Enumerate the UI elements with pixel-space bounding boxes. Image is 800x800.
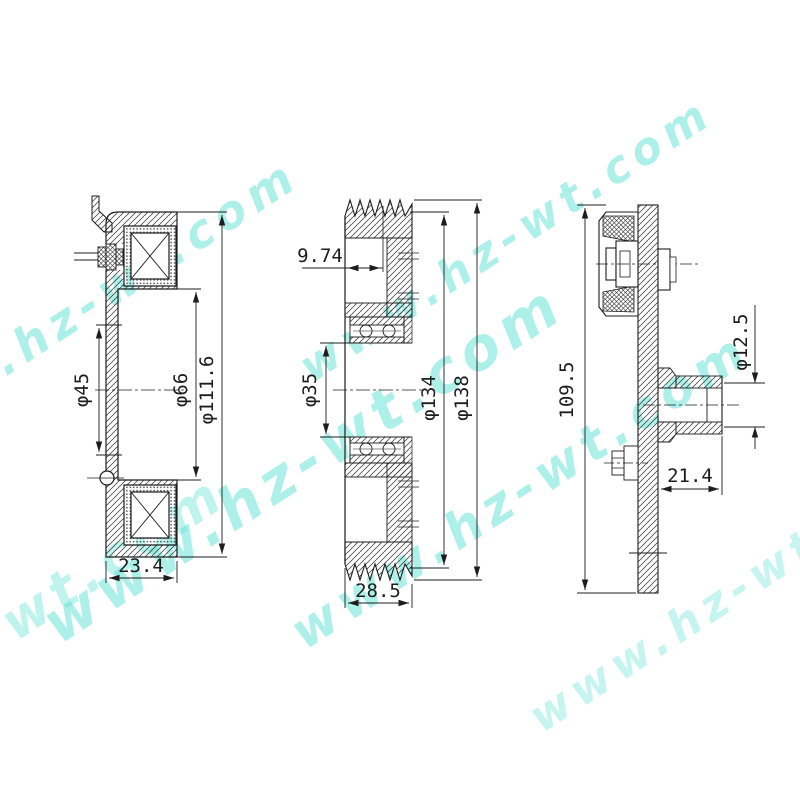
- damper-rubber-top: [603, 216, 634, 242]
- pulley-rim-top: [345, 200, 412, 238]
- pulley-section-view: 9.74 φ35 φ134 φ138 28.5: [297, 200, 482, 608]
- technical-drawing-page: www.hz-wt.com www.hz-wt.com www.hz-wt.co…: [0, 0, 800, 800]
- dim-pulley-root-label: φ134: [418, 375, 440, 421]
- hub-section-view: 109.5 φ12.5 21.4: [556, 205, 765, 593]
- dim-coil-outer-label: φ111.6: [196, 356, 218, 425]
- coil-terminal: [74, 244, 123, 270]
- damper-rubber-bottom: [603, 286, 634, 312]
- dim-hub-overall-label: 109.5: [556, 361, 578, 418]
- dim-coil-width-label: 23.4: [118, 555, 164, 577]
- dim-coil-inner-label: φ66: [170, 373, 192, 407]
- stopper-tab: [658, 249, 676, 290]
- coil-winding-bottom: [131, 492, 169, 538]
- dim-pulley-outer-label: φ138: [451, 375, 473, 421]
- bearing-top: [350, 317, 412, 343]
- pulley-rim-bottom: [345, 542, 412, 580]
- dim-shaft-bore-label: φ12.5: [730, 313, 752, 370]
- dim-pulley-width-label: 28.5: [355, 580, 401, 602]
- dim-coil-bore-label: φ45: [71, 373, 93, 407]
- armature-plate: [638, 205, 658, 593]
- bearing-bottom: [350, 437, 412, 463]
- dim-pulley-bore-label: φ35: [299, 373, 321, 407]
- coil-section-view: φ45 φ66 φ111.6 23.4: [71, 196, 227, 583]
- dim-groove-offset-label: 9.74: [297, 245, 343, 267]
- dim-hub-depth-label: 21.4: [667, 465, 713, 487]
- cad-drawing-canvas: φ45 φ66 φ111.6 23.4: [0, 0, 800, 800]
- coil-winding-top: [131, 233, 169, 279]
- mounting-bracket: [92, 196, 112, 232]
